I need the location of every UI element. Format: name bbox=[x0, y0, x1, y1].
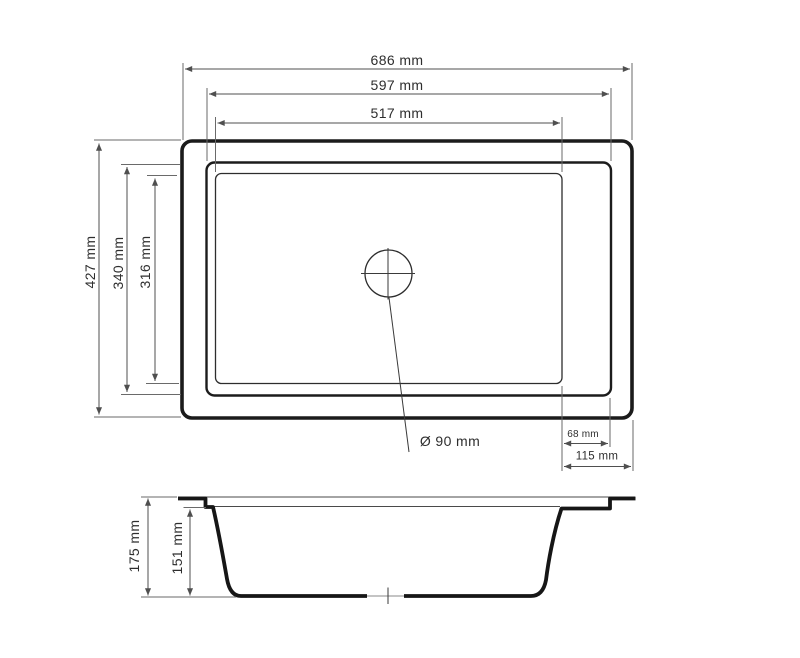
drain-leader-line bbox=[389, 298, 409, 453]
label-drain-diameter: Ø 90 mm bbox=[420, 434, 480, 448]
label-rim-width: 597 mm bbox=[371, 78, 424, 92]
top-view-outline bbox=[182, 141, 632, 452]
label-bowl-width: 517 mm bbox=[371, 106, 424, 120]
top-view-dimensions bbox=[94, 63, 633, 471]
side-view-outline bbox=[178, 497, 636, 604]
sink-bowl-bottom-edge bbox=[216, 174, 563, 384]
label-right-ledge: 68 mm bbox=[567, 430, 599, 440]
label-overall-depth: 427 mm bbox=[83, 236, 97, 289]
sink-technical-drawing: 686 mm 597 mm 517 mm 427 mm 340 mm 316 m… bbox=[0, 0, 800, 658]
sink-bowl-rim bbox=[207, 163, 612, 396]
label-overall-width: 686 mm bbox=[371, 53, 424, 67]
label-bowl-depth: 316 mm bbox=[138, 236, 152, 289]
sink-outer-edge bbox=[182, 141, 632, 418]
label-rim-depth: 340 mm bbox=[111, 237, 125, 290]
section-profile-left bbox=[178, 499, 367, 597]
label-right-edge: 115 mm bbox=[576, 451, 619, 463]
label-bowl-inner-depth: 151 mm bbox=[170, 522, 184, 575]
drawing-canvas bbox=[0, 0, 800, 658]
section-profile-right bbox=[404, 499, 636, 597]
label-overall-height: 175 mm bbox=[127, 520, 141, 573]
